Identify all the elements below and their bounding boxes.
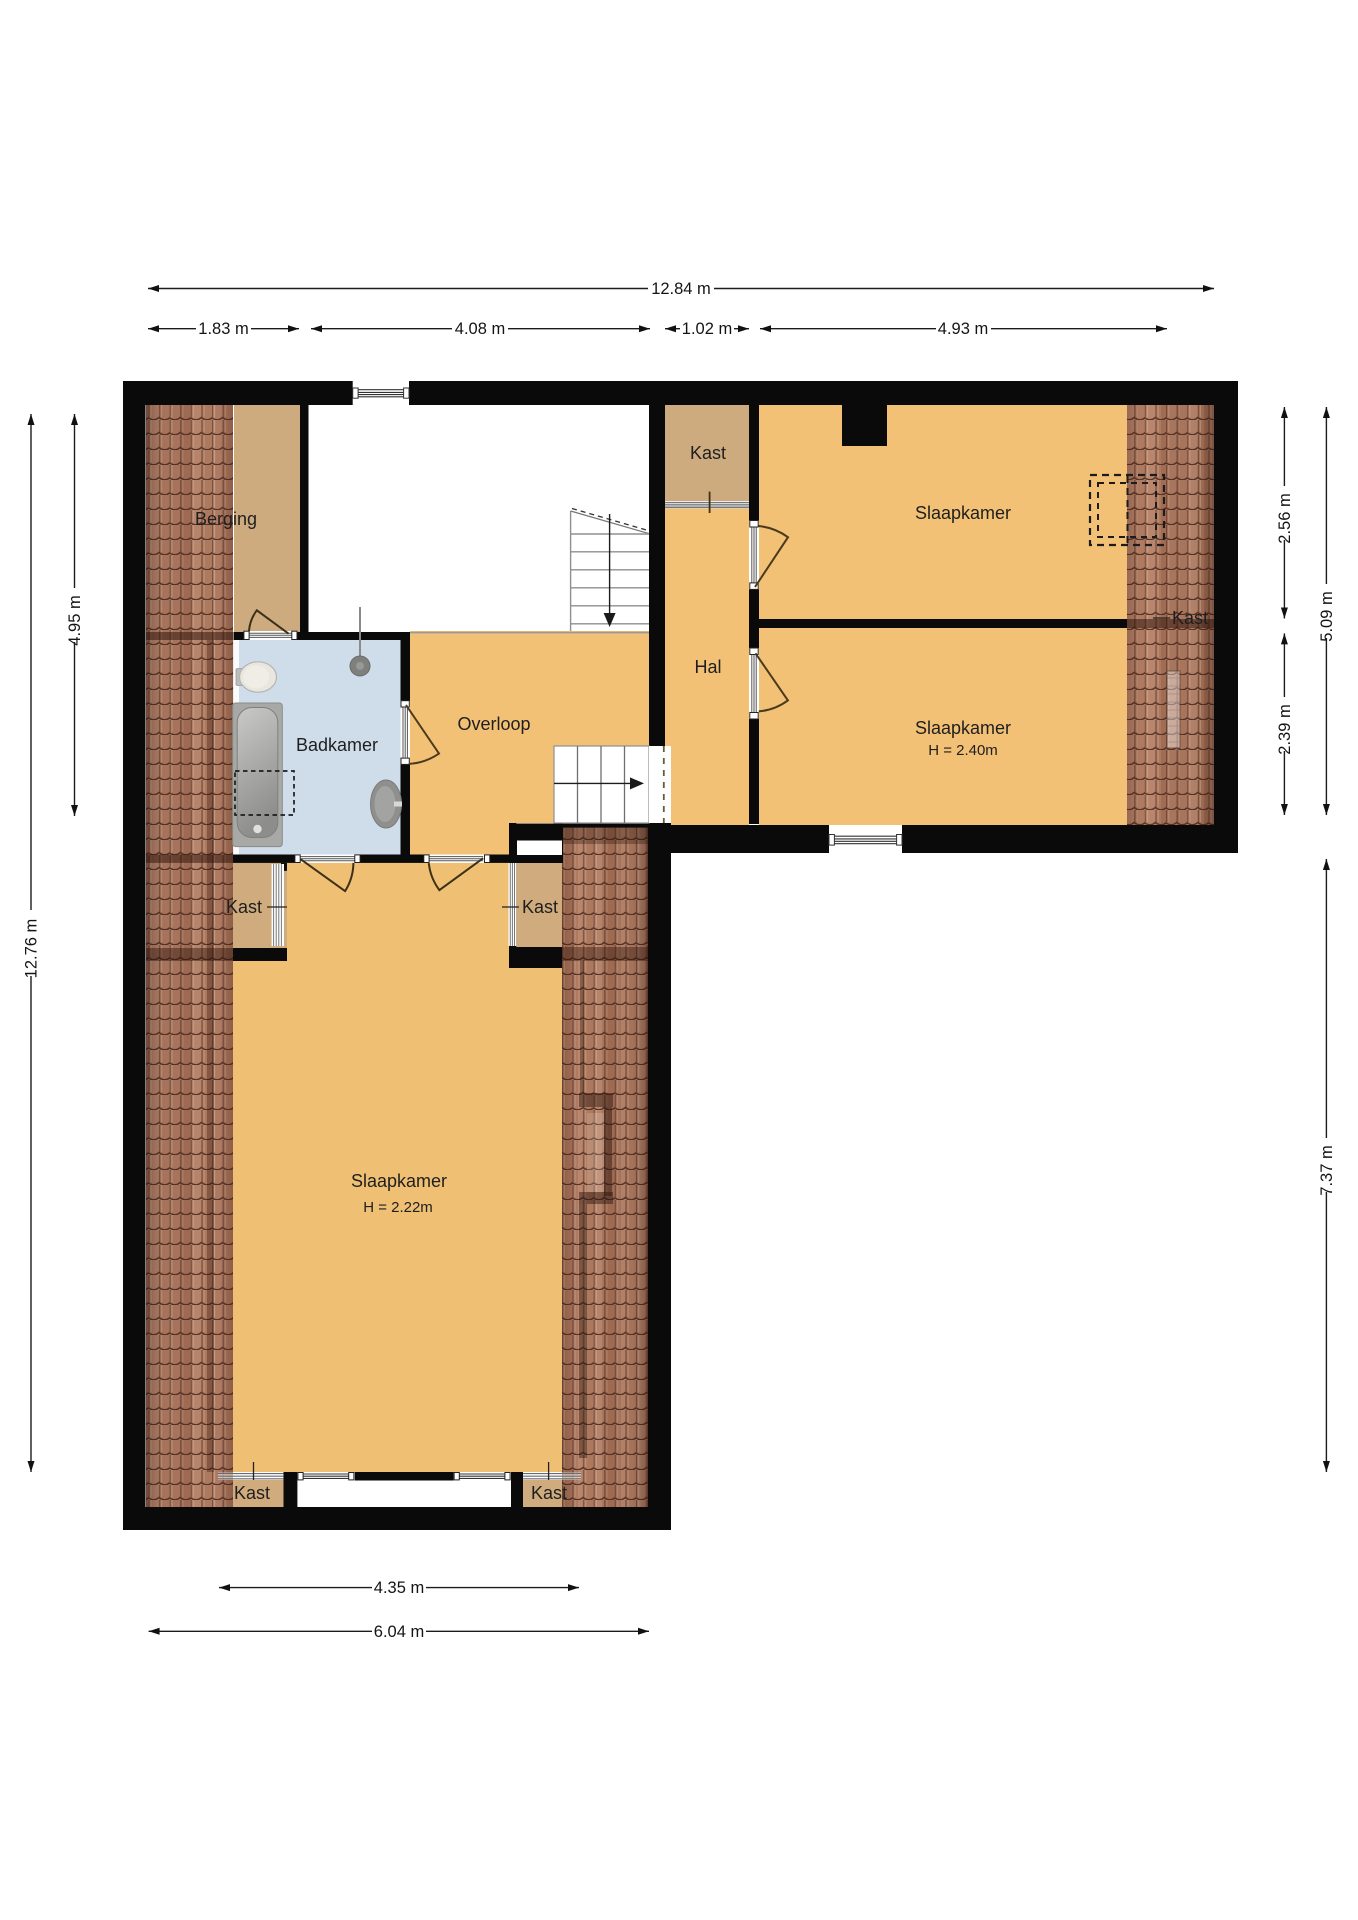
svg-text:Kast: Kast bbox=[234, 1483, 270, 1503]
svg-text:5.09 m: 5.09 m bbox=[1318, 591, 1336, 641]
svg-text:Badkamer: Badkamer bbox=[296, 735, 378, 755]
svg-text:Overloop: Overloop bbox=[457, 714, 530, 734]
svg-text:2.39 m: 2.39 m bbox=[1276, 704, 1294, 754]
svg-text:Slaapkamer: Slaapkamer bbox=[915, 503, 1011, 523]
svg-text:2.56 m: 2.56 m bbox=[1276, 493, 1294, 543]
svg-text:6.04 m: 6.04 m bbox=[374, 1623, 424, 1641]
svg-text:Kast: Kast bbox=[1172, 608, 1208, 628]
svg-text:1.83 m: 1.83 m bbox=[198, 320, 248, 338]
svg-text:Slaapkamer: Slaapkamer bbox=[351, 1171, 447, 1191]
svg-text:4.93 m: 4.93 m bbox=[938, 320, 988, 338]
svg-text:4.35 m: 4.35 m bbox=[374, 1579, 424, 1597]
svg-text:12.84 m: 12.84 m bbox=[651, 280, 711, 298]
svg-text:H = 2.22m: H = 2.22m bbox=[363, 1199, 433, 1216]
svg-text:4.95 m: 4.95 m bbox=[66, 595, 84, 645]
svg-text:1.02 m: 1.02 m bbox=[682, 320, 732, 338]
svg-text:Hal: Hal bbox=[694, 657, 721, 677]
svg-text:H = 2.40m: H = 2.40m bbox=[928, 742, 998, 759]
svg-text:7.37 m: 7.37 m bbox=[1318, 1145, 1336, 1195]
svg-text:Kast: Kast bbox=[531, 1483, 567, 1503]
svg-text:4.08 m: 4.08 m bbox=[455, 320, 505, 338]
svg-text:Kast: Kast bbox=[226, 897, 262, 917]
svg-text:Slaapkamer: Slaapkamer bbox=[915, 718, 1011, 738]
svg-text:Berging: Berging bbox=[195, 509, 257, 529]
svg-text:Kast: Kast bbox=[522, 897, 558, 917]
svg-text:12.76 m: 12.76 m bbox=[23, 919, 41, 979]
svg-text:Kast: Kast bbox=[690, 443, 726, 463]
